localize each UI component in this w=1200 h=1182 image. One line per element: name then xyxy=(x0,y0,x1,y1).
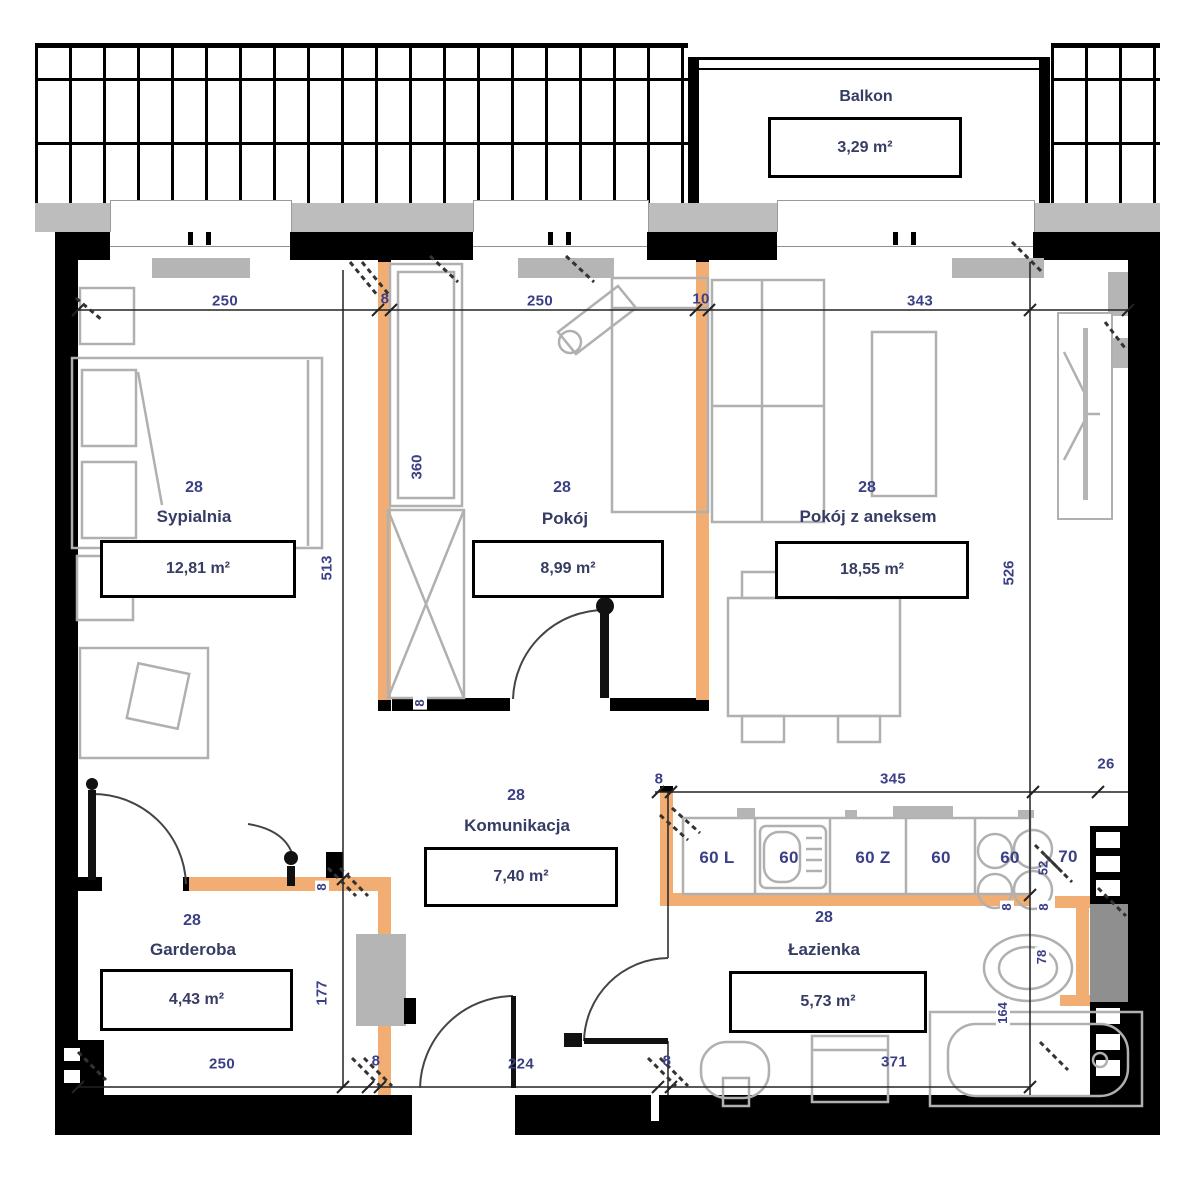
room-name-garderoba: Garderoba xyxy=(150,940,236,960)
room-area-garderoba: 4,43 m² xyxy=(100,969,293,1031)
kitchen-unit-60a: 60 xyxy=(931,848,951,868)
dim-bath-164: 164 xyxy=(996,999,1010,1027)
dim-sypialnia-513: 513 xyxy=(319,555,336,580)
room-number-lazienka: 28 xyxy=(812,911,836,925)
dim-wall-8-sypialnia: 8 xyxy=(315,880,329,893)
room-number-garderoba: 28 xyxy=(183,912,201,930)
dim-top-343: 343 xyxy=(907,293,933,310)
dim-top-250b: 250 xyxy=(527,293,553,310)
dim-bottom-250: 250 xyxy=(209,1056,235,1073)
dim-aneks-526: 526 xyxy=(1001,560,1018,585)
dim-wall-8-kitchen-b: 8 xyxy=(1037,900,1051,913)
dim-bottom-371: 371 xyxy=(881,1054,907,1071)
kitchen-unit-60z: 60 Z xyxy=(855,848,890,868)
dim-top-10: 10 xyxy=(692,291,709,308)
dim-bottom-224: 224 xyxy=(508,1056,534,1073)
dim-bottom-8a: 8 xyxy=(372,1053,381,1070)
room-number-komunikacja: 28 xyxy=(507,787,525,805)
dim-wall-8-kitchen-a: 8 xyxy=(1000,900,1014,913)
room-name-lazienka: Łazienka xyxy=(788,940,860,960)
dim-hob-52: 52 xyxy=(1036,861,1051,875)
room-name-sypialnia: Sypialnia xyxy=(157,507,232,527)
kitchen-unit-60b: 60 xyxy=(1000,848,1020,868)
dim-kitchen-8: 8 xyxy=(655,771,664,788)
room-name-pokoj-z-aneksem: Pokój z aneksem xyxy=(799,507,936,527)
dim-basin-78: 78 xyxy=(1035,947,1049,967)
room-number-pokoj: 28 xyxy=(553,479,571,497)
dim-wardrobe-360: 360 xyxy=(409,454,426,479)
dim-bottom-8b: 8 xyxy=(663,1053,672,1070)
room-name-pokoj: Pokój xyxy=(542,509,588,529)
kitchen-unit-70: 70 xyxy=(1058,847,1078,867)
room-area-lazienka: 5,73 m² xyxy=(729,971,927,1033)
room-number-sypialnia: 28 xyxy=(185,479,203,497)
room-area-pokoj-z-aneksem: 18,55 m² xyxy=(775,541,969,599)
dim-top-8: 8 xyxy=(381,291,390,308)
kitchen-unit-60l: 60 L xyxy=(699,848,734,868)
floor-plan: Balkon 3,29 m² xyxy=(0,0,1200,1182)
dim-kitchen-26: 26 xyxy=(1097,756,1114,773)
room-area-sypialnia: 12,81 m² xyxy=(100,540,296,598)
room-area-pokoj: 8,99 m² xyxy=(472,540,664,598)
kitchen-unit-60-sink: 60 xyxy=(779,848,799,868)
dim-wall-8-pokoj: 8 xyxy=(413,696,427,709)
dim-garderoba-177: 177 xyxy=(314,980,331,1005)
room-area-komunikacja: 7,40 m² xyxy=(424,847,618,907)
dim-kitchen-345: 345 xyxy=(880,771,906,788)
room-number-pokoj-z-aneksem: 28 xyxy=(858,479,876,497)
dim-top-250a: 250 xyxy=(212,293,238,310)
room-name-komunikacja: Komunikacja xyxy=(464,816,570,836)
